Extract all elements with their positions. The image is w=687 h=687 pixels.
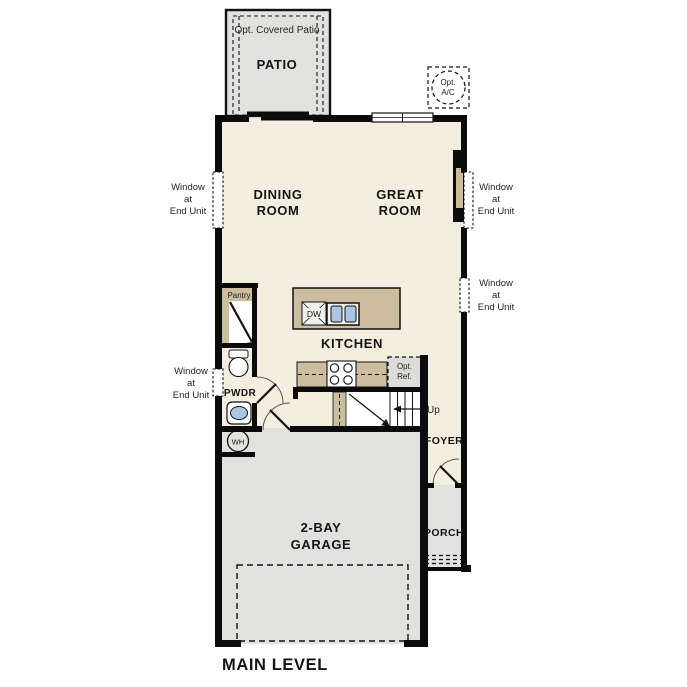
- toilet-bowl-icon: [229, 358, 248, 377]
- opt-ac-label-line1: Opt.: [440, 78, 455, 87]
- dining-end-unit-window: [213, 172, 223, 228]
- garage-slab: [218, 428, 424, 644]
- wall-segment: [420, 483, 434, 488]
- opt-ac-label-line2: A/C: [441, 88, 455, 97]
- pantry-label: Pantry: [227, 291, 250, 300]
- wall-segment: [252, 403, 257, 428]
- window-note-line: at: [492, 194, 500, 205]
- window-note-line: at: [187, 378, 195, 389]
- dining-room-label-line1: DINING: [253, 187, 302, 202]
- floor-plan-page: Opt. Covered Patio PATIO Opt. A/C DW: [0, 0, 687, 687]
- window-note-line: Window: [171, 182, 205, 193]
- level-title: MAIN LEVEL: [222, 656, 328, 674]
- stairs-up-label: Up: [427, 405, 440, 416]
- patio-label: PATIO: [257, 57, 298, 72]
- wall-segment: [215, 640, 241, 647]
- wall-segment: [461, 565, 471, 572]
- wall-segment: [215, 395, 222, 647]
- sink-basin-right: [345, 306, 356, 322]
- water-heater-label: WH: [232, 438, 245, 447]
- opt-covered-patio-label: Opt. Covered Patio: [234, 25, 319, 36]
- wall-segment: [420, 355, 428, 428]
- opt-ac-unit: Opt. A/C: [428, 67, 469, 108]
- garage-label-line1: 2-BAY: [301, 520, 342, 535]
- dining-room-label-line2: ROOM: [257, 203, 300, 218]
- window-note-line: End Unit: [478, 206, 515, 217]
- powder-room-label: PWDR: [224, 388, 257, 399]
- wall-segment: [215, 115, 222, 173]
- window-note-line: Window: [174, 366, 208, 377]
- window-note-line: End Unit: [478, 302, 515, 313]
- vanity-sink-basin: [231, 407, 248, 420]
- sink-basin-left: [331, 306, 342, 322]
- great-room-end-unit-window: [464, 172, 473, 228]
- kitchen-end-unit-window: [460, 278, 469, 312]
- window-note-line: End Unit: [173, 390, 210, 401]
- window-note-line: at: [492, 290, 500, 301]
- garage-label-line2: GARAGE: [291, 537, 352, 552]
- media-wall-inset: [456, 168, 463, 208]
- wall-segment: [313, 115, 374, 122]
- wall-segment: [215, 227, 222, 370]
- opt-fridge-label-line1: Opt.: [397, 362, 412, 371]
- wall-segment: [293, 387, 428, 392]
- window-note-line: Window: [479, 278, 513, 289]
- sliding-door-panel: [261, 117, 318, 121]
- floor-plan-drawing: Opt. Covered Patio PATIO Opt. A/C DW: [0, 0, 687, 687]
- wall-segment: [215, 426, 262, 432]
- window-note-line: at: [184, 194, 192, 205]
- pantry-area: Pantry: [222, 288, 255, 345]
- window-note-dining: Window at End Unit: [170, 182, 207, 217]
- wall-segment: [455, 483, 467, 488]
- water-heater-area: WH: [228, 431, 249, 452]
- patio-area: Opt. Covered Patio PATIO: [226, 10, 330, 116]
- wall-segment: [252, 283, 257, 377]
- wall-segment: [222, 343, 257, 348]
- great-room-label-line2: ROOM: [379, 203, 422, 218]
- dishwasher-label: DW: [307, 309, 321, 319]
- powder-end-unit-window: [213, 369, 223, 396]
- wall-segment: [215, 452, 255, 457]
- opt-fridge-label-line2: Ref.: [397, 372, 412, 381]
- window-note-line: End Unit: [170, 206, 207, 217]
- wall-segment: [461, 227, 467, 279]
- wall-segment: [293, 387, 298, 399]
- great-room-label-line1: GREAT: [376, 187, 424, 202]
- wall-segment: [215, 283, 258, 288]
- foyer-label: FOYER: [425, 435, 463, 447]
- porch-label: PORCH: [424, 527, 464, 539]
- wall-segment: [290, 426, 428, 432]
- toilet-tank-icon: [229, 350, 248, 358]
- window-note-great-room: Window at End Unit: [478, 182, 515, 217]
- wall-segment: [461, 115, 467, 173]
- window-note-powder: Window at End Unit: [173, 366, 210, 401]
- window-note-line: Window: [479, 182, 513, 193]
- porch-step-edge: [424, 567, 467, 571]
- sliding-door-panel: [247, 112, 309, 116]
- kitchen-label: KITCHEN: [321, 336, 383, 351]
- window-note-kitchen: Window at End Unit: [478, 278, 515, 313]
- wall-segment: [404, 640, 428, 647]
